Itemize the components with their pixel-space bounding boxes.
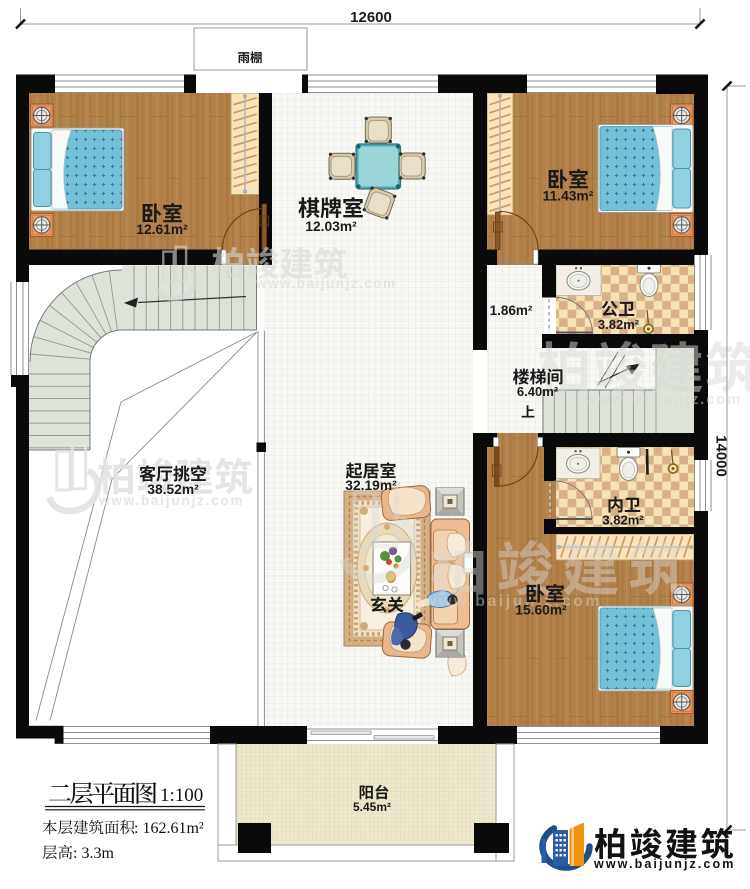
svg-text:www.baijunjz.com: www.baijunjz.com bbox=[423, 593, 602, 610]
svg-text:www.baijunjz.com: www.baijunjz.com bbox=[593, 857, 735, 871]
svg-text:www.baijunjz.com: www.baijunjz.com bbox=[255, 276, 397, 291]
svg-text:3.82m²: 3.82m² bbox=[598, 317, 640, 332]
svg-text:www.baijunjz.com: www.baijunjz.com bbox=[584, 392, 742, 408]
svg-text:32.19m²: 32.19m² bbox=[345, 478, 397, 493]
svg-text:12.03m²: 12.03m² bbox=[305, 219, 357, 234]
svg-text:: 162.61m²: : 162.61m² bbox=[134, 820, 204, 837]
svg-text:5.45m²: 5.45m² bbox=[353, 800, 391, 814]
svg-text:11.43m²: 11.43m² bbox=[543, 189, 594, 204]
svg-text:3.82m²: 3.82m² bbox=[602, 513, 644, 528]
svg-text:14000: 14000 bbox=[713, 435, 730, 477]
svg-text:: 3.3m: : 3.3m bbox=[73, 845, 114, 862]
svg-text:1:100: 1:100 bbox=[160, 785, 203, 806]
svg-text:15.60m²: 15.60m² bbox=[515, 603, 567, 618]
svg-text:1.86m²: 1.86m² bbox=[490, 303, 533, 318]
svg-text:6.40m²: 6.40m² bbox=[517, 384, 559, 399]
svg-text:12600: 12600 bbox=[350, 9, 392, 26]
svg-text:38.52m²: 38.52m² bbox=[147, 482, 199, 497]
svg-text:12.61m²: 12.61m² bbox=[136, 222, 188, 237]
